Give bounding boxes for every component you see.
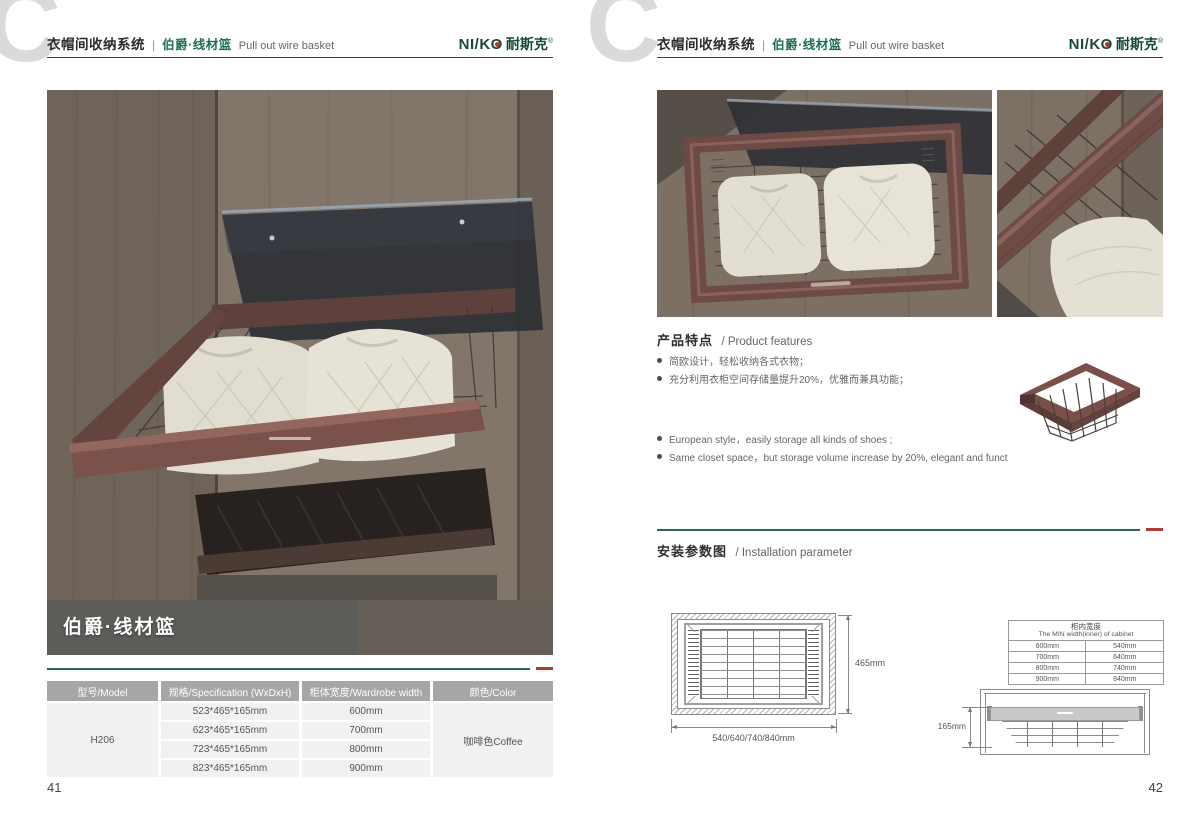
dim-extension <box>962 747 992 748</box>
table-cell-spec: 623*465*165mm <box>161 722 299 739</box>
page-right: C 衣帽间收纳系统 | 伯爵·线材篮 Pull out wire basket … <box>600 0 1200 820</box>
min-width-title-cn: 柜内宽度 <box>1009 622 1163 631</box>
arrow-down-icon <box>846 709 850 714</box>
header-rule <box>657 57 1163 58</box>
min-width-table: 柜内宽度 The MIN width(inner) of cabinet 600… <box>1008 620 1164 685</box>
dimension-label-widths: 540/640/740/840mm <box>671 733 836 743</box>
separator <box>657 528 1163 531</box>
dim-extension <box>962 707 992 708</box>
product-render-image <box>1008 333 1148 465</box>
arrow-up-icon <box>968 707 972 712</box>
c-watermark-icon: C <box>586 0 661 78</box>
bullet-dot-icon <box>657 376 662 381</box>
table-header-model: 型号/Model <box>47 681 158 701</box>
wardrobe-photo-art <box>47 90 553 655</box>
catalog-spread: C 衣帽间收纳系统 | 伯爵·线材篮 Pull out wire basket … <box>0 0 1200 820</box>
installation-title: 安装参数图 / Installation parameter <box>657 541 852 561</box>
table-header-spec: 规格/Specification (WxDxH) <box>161 681 299 701</box>
cell-wardrobe-width: 600mm <box>1009 641 1086 652</box>
feature-item: Same closet space，but storage volume inc… <box>657 449 1031 464</box>
table-cell-width: 800mm <box>302 741 430 758</box>
arrow-up-icon <box>846 615 850 620</box>
page-header: 衣帽间收纳系统 | 伯爵·线材篮 Pull out wire basket NI… <box>47 33 553 55</box>
table-cell-color: 咖啡色Coffee <box>433 703 553 777</box>
spring-section-right <box>808 630 819 698</box>
table-header-color: 颜色/Color <box>433 681 553 701</box>
table-cell-width: 900mm <box>302 760 430 777</box>
table-cell-model: H206 <box>47 703 158 777</box>
header-rule <box>47 57 553 58</box>
logo-text: NI/K <box>459 36 491 53</box>
logo-o: O <box>1101 36 1113 53</box>
arrow-down-icon <box>968 742 972 747</box>
header-divider: | <box>762 38 765 52</box>
dimension-label-depth: 465mm <box>855 658 885 668</box>
logo-red-dot-icon <box>1105 42 1110 47</box>
logo-cn-text: 耐斯克 <box>1116 34 1158 54</box>
dimension-label-height: 165mm <box>922 721 966 731</box>
cell-min-inner-width: 840mm <box>1086 674 1164 685</box>
bullet-dot-icon <box>657 358 662 363</box>
table-row: 800mm740mm <box>1009 663 1164 674</box>
dim-line <box>672 727 836 728</box>
detail-photo-top <box>657 90 992 317</box>
wire-body <box>1002 721 1128 747</box>
page-number: 41 <box>47 780 61 795</box>
cell-wardrobe-width: 700mm <box>1009 652 1086 663</box>
arrow-left-icon <box>672 725 677 729</box>
cell-min-inner-width: 540mm <box>1086 641 1164 652</box>
header-product-title: 伯爵·线材篮 <box>162 34 232 53</box>
feature-text: European style，easily storage all kinds … <box>669 431 892 446</box>
cell-min-inner-width: 640mm <box>1086 652 1164 663</box>
page-number: 42 <box>1149 780 1163 795</box>
photo-product-label: 伯爵·线材篮 <box>63 612 176 639</box>
installation-title-cn: 安装参数图 <box>657 544 727 559</box>
cabinet-wall-left <box>985 693 986 753</box>
feature-text: Same closet space，but storage volume inc… <box>669 449 1031 464</box>
header-divider: | <box>152 38 155 52</box>
separator-green-line <box>657 529 1140 531</box>
main-product-photo: 伯爵·线材篮 <box>47 90 553 655</box>
front-view-diagram <box>980 689 1150 755</box>
separator-green-line <box>47 668 530 670</box>
logo-text: NI/K <box>1069 36 1101 53</box>
basket-corner-photo-art <box>997 90 1163 317</box>
logo-red-dot-icon <box>495 42 500 47</box>
spec-table: 型号/Model 规格/Specification (WxDxH) 柜体宽度/W… <box>47 681 553 777</box>
table-cell-width: 600mm <box>302 703 430 720</box>
table-row: 600mm540mm <box>1009 641 1164 652</box>
detail-photo-corner <box>997 90 1163 317</box>
arrow-right-icon <box>831 725 836 729</box>
bullet-dot-icon <box>657 454 662 459</box>
feature-item: 充分利用衣柜空间存储量提升20%，优雅而兼具功能； <box>657 371 909 386</box>
header-product-title: 伯爵·线材篮 <box>772 34 842 53</box>
cell-wardrobe-width: 900mm <box>1009 674 1086 685</box>
table-row: 700mm640mm <box>1009 652 1164 663</box>
rail-logo-mark <box>1057 712 1073 714</box>
feature-item: European style，easily storage all kinds … <box>657 431 892 446</box>
table-row: 900mm840mm <box>1009 674 1164 685</box>
page-header: 衣帽间收纳系统 | 伯爵·线材篮 Pull out wire basket NI… <box>657 33 1163 55</box>
registered-mark: ® <box>548 38 553 45</box>
cell-min-inner-width: 740mm <box>1086 663 1164 674</box>
header-product-subtitle: Pull out wire basket <box>239 40 334 52</box>
registered-mark: ® <box>1158 38 1163 45</box>
spring-section-left <box>688 630 699 698</box>
basket-front-rail <box>990 707 1140 721</box>
dim-line <box>848 616 849 714</box>
wire-grid <box>700 629 807 699</box>
header-product-subtitle: Pull out wire basket <box>849 40 944 52</box>
logo-o: O <box>491 36 503 53</box>
separator-red-dash <box>1146 528 1163 531</box>
table-cell-width: 700mm <box>302 722 430 739</box>
cabinet-top-line <box>984 693 1146 694</box>
cabinet-wall-right <box>1144 693 1145 753</box>
feature-text: 简欧设计，轻松收纳各式衣物； <box>669 353 809 368</box>
basket-top-photo-art <box>657 90 992 317</box>
installation-title-en: / Installation parameter <box>735 547 852 559</box>
brand-logo: NI/KO 耐斯克 ® <box>1069 34 1163 54</box>
top-view-diagram <box>671 613 836 715</box>
cell-wardrobe-width: 800mm <box>1009 663 1086 674</box>
min-width-table-header: 柜内宽度 The MIN width(inner) of cabinet <box>1009 621 1164 641</box>
table-cell-spec: 823*465*165mm <box>161 760 299 777</box>
bullet-dot-icon <box>657 436 662 441</box>
min-width-title-en: The MIN width(inner) of cabinet <box>1009 631 1163 639</box>
wire-basket-render-art <box>1008 333 1148 465</box>
table-cell-spec: 723*465*165mm <box>161 741 299 758</box>
features-title-cn: 产品特点 <box>657 333 713 348</box>
dim-extension <box>836 719 837 733</box>
separator-red-dash <box>536 667 553 670</box>
table-cell-spec: 523*465*165mm <box>161 703 299 720</box>
header-system-title: 衣帽间收纳系统 <box>47 33 145 53</box>
feature-text: 充分利用衣柜空间存储量提升20%，优雅而兼具功能； <box>669 371 909 386</box>
brand-logo: NI/KO 耐斯克 ® <box>459 34 553 54</box>
page-left: C 衣帽间收纳系统 | 伯爵·线材篮 Pull out wire basket … <box>0 0 600 820</box>
logo-cn-text: 耐斯克 <box>506 34 548 54</box>
feature-item: 简欧设计，轻松收纳各式衣物； <box>657 353 809 368</box>
features-title-en: / Product features <box>721 336 812 348</box>
features-title: 产品特点 / Product features <box>657 330 812 350</box>
table-header-width: 柜体宽度/Wardrobe width <box>302 681 430 701</box>
separator <box>47 667 553 670</box>
header-system-title: 衣帽间收纳系统 <box>657 33 755 53</box>
